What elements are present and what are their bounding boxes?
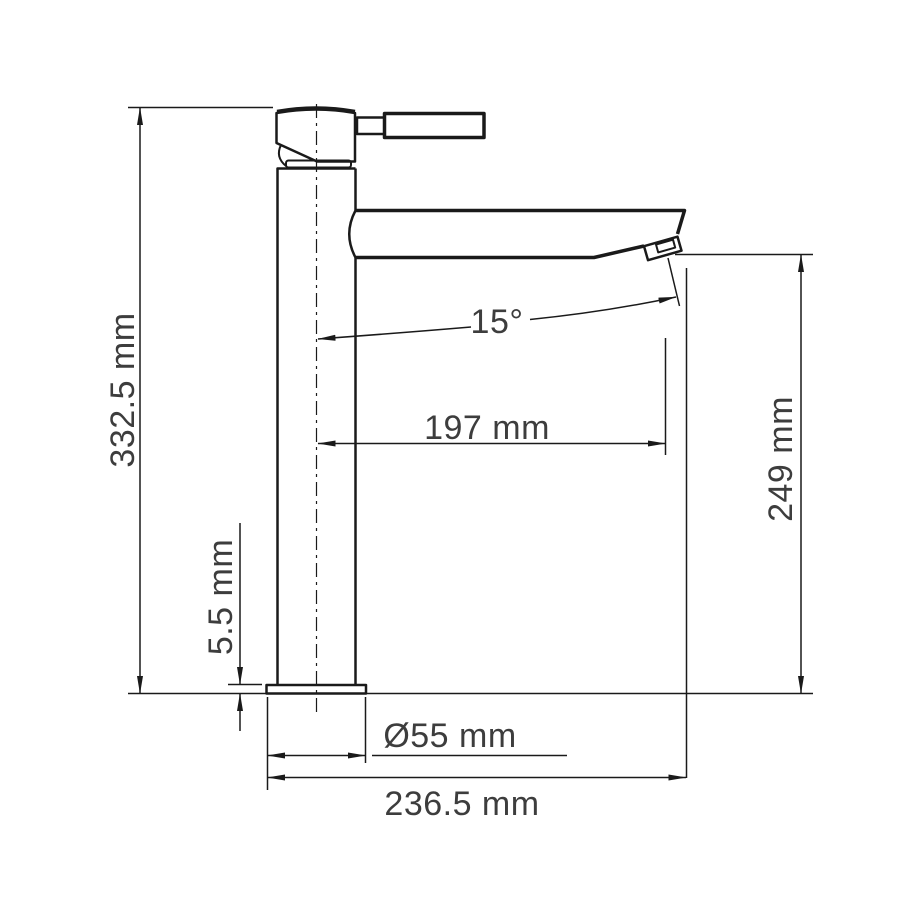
faucet-column-right xyxy=(349,169,355,686)
faucet-handle-lever xyxy=(385,114,485,138)
faucet-aerator-housing xyxy=(644,237,682,261)
label-overall-height: 332.5 mm xyxy=(104,312,142,467)
technical-drawing-page: 332.5 mm 5.5 mm 15° 197 mm 249 mm xyxy=(0,0,900,900)
dimension-annotations: 332.5 mm 5.5 mm 15° 197 mm 249 mm xyxy=(104,108,813,824)
label-base-plate-thickness: 5.5 mm xyxy=(202,539,240,655)
faucet-outline xyxy=(267,104,685,712)
faucet-handle-stem xyxy=(357,118,385,135)
label-base-diameter: Ø55 mm xyxy=(383,717,516,755)
faucet-spout-underside xyxy=(356,246,645,258)
faucet-spout-top xyxy=(356,211,685,235)
label-spout-angle: 15° xyxy=(471,303,524,341)
faucet-head-body xyxy=(277,110,356,162)
label-overall-depth: 236.5 mm xyxy=(384,785,539,823)
label-spout-reach: 197 mm xyxy=(424,409,550,447)
angle-arc-left xyxy=(318,327,471,339)
angle-arc-right xyxy=(530,297,676,320)
faucet-dimension-drawing: 332.5 mm 5.5 mm 15° 197 mm 249 mm xyxy=(0,0,900,900)
label-outlet-height: 249 mm xyxy=(762,396,800,522)
